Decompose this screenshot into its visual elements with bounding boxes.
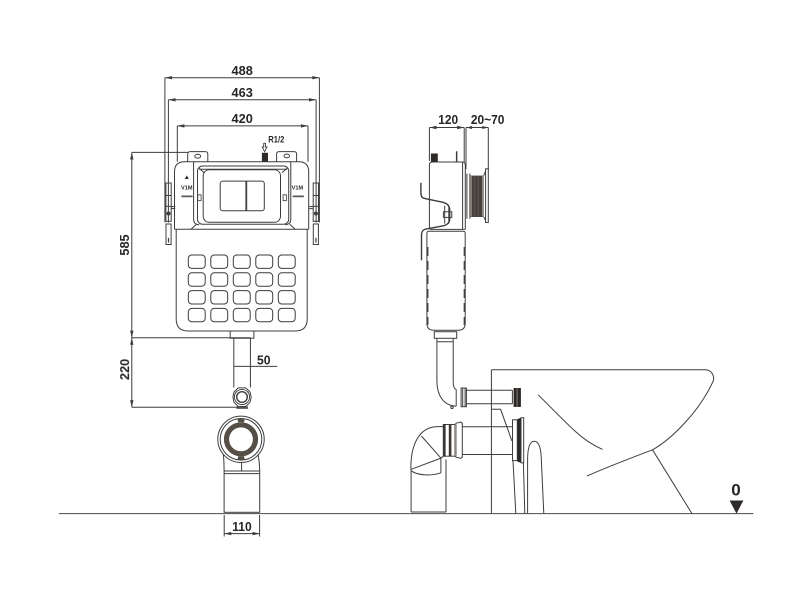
svg-text:0: 0 bbox=[731, 480, 740, 499]
svg-text:220: 220 bbox=[117, 359, 132, 380]
svg-text:420: 420 bbox=[232, 111, 253, 126]
svg-text:R1/2: R1/2 bbox=[268, 134, 284, 144]
svg-text:120: 120 bbox=[438, 112, 458, 127]
svg-text:585: 585 bbox=[117, 234, 132, 255]
svg-text:463: 463 bbox=[232, 85, 253, 100]
svg-text:20~70: 20~70 bbox=[471, 112, 505, 127]
svg-text:50: 50 bbox=[257, 352, 271, 367]
svg-text:110: 110 bbox=[232, 519, 252, 534]
svg-text:V1M: V1M bbox=[181, 186, 193, 192]
svg-text:488: 488 bbox=[232, 63, 253, 78]
svg-text:V1M: V1M bbox=[292, 186, 304, 192]
